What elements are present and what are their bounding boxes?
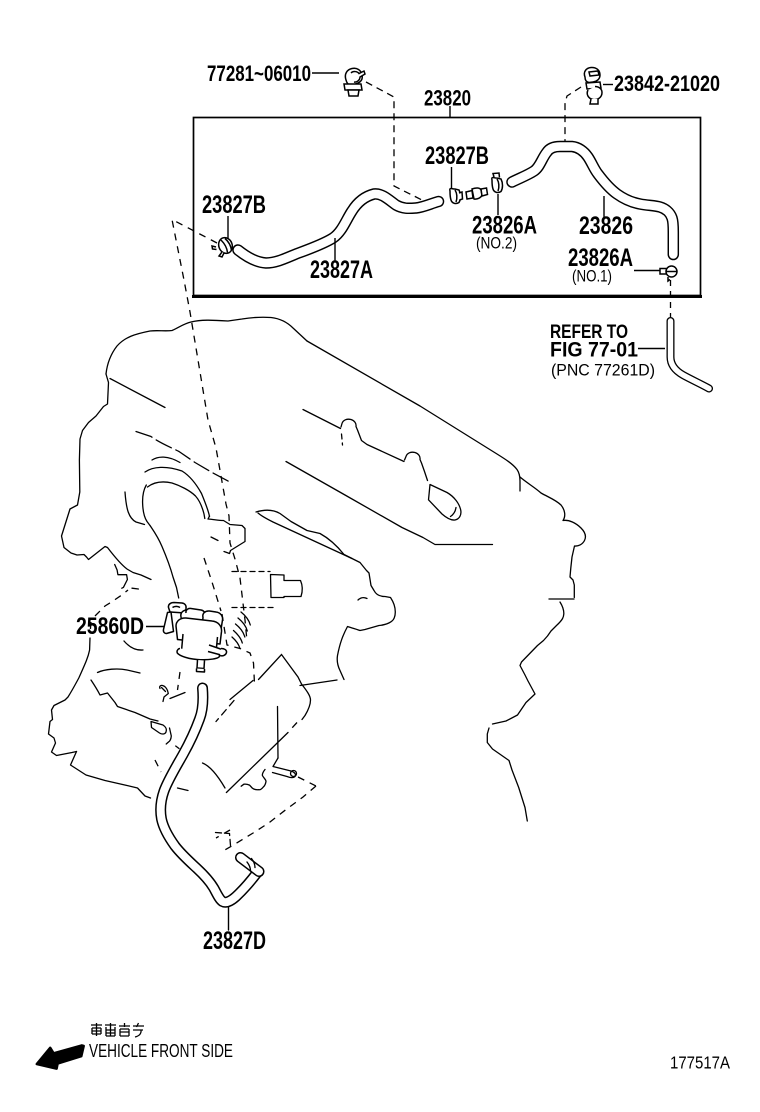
svg-text:23820: 23820 xyxy=(424,86,471,111)
svg-text:23827B: 23827B xyxy=(202,191,266,219)
svg-text:(NO.1): (NO.1) xyxy=(572,268,612,286)
svg-text:177517A: 177517A xyxy=(670,1053,730,1073)
svg-text:23827A: 23827A xyxy=(310,256,373,284)
svg-text:FIG 77-01: FIG 77-01 xyxy=(550,339,638,362)
svg-text:23827B: 23827B xyxy=(425,142,489,170)
svg-text:25860D: 25860D xyxy=(76,613,144,640)
svg-text:23827D: 23827D xyxy=(203,927,266,955)
svg-text:77281~06010: 77281~06010 xyxy=(207,61,311,86)
svg-text:(PNC 77261D): (PNC 77261D) xyxy=(551,362,655,380)
svg-text:23842-21020: 23842-21020 xyxy=(614,71,720,96)
svg-text:VEHICLE FRONT SIDE: VEHICLE FRONT SIDE xyxy=(89,1041,233,1061)
svg-text:23826: 23826 xyxy=(579,212,633,240)
svg-text:(NO.2): (NO.2) xyxy=(476,235,517,253)
